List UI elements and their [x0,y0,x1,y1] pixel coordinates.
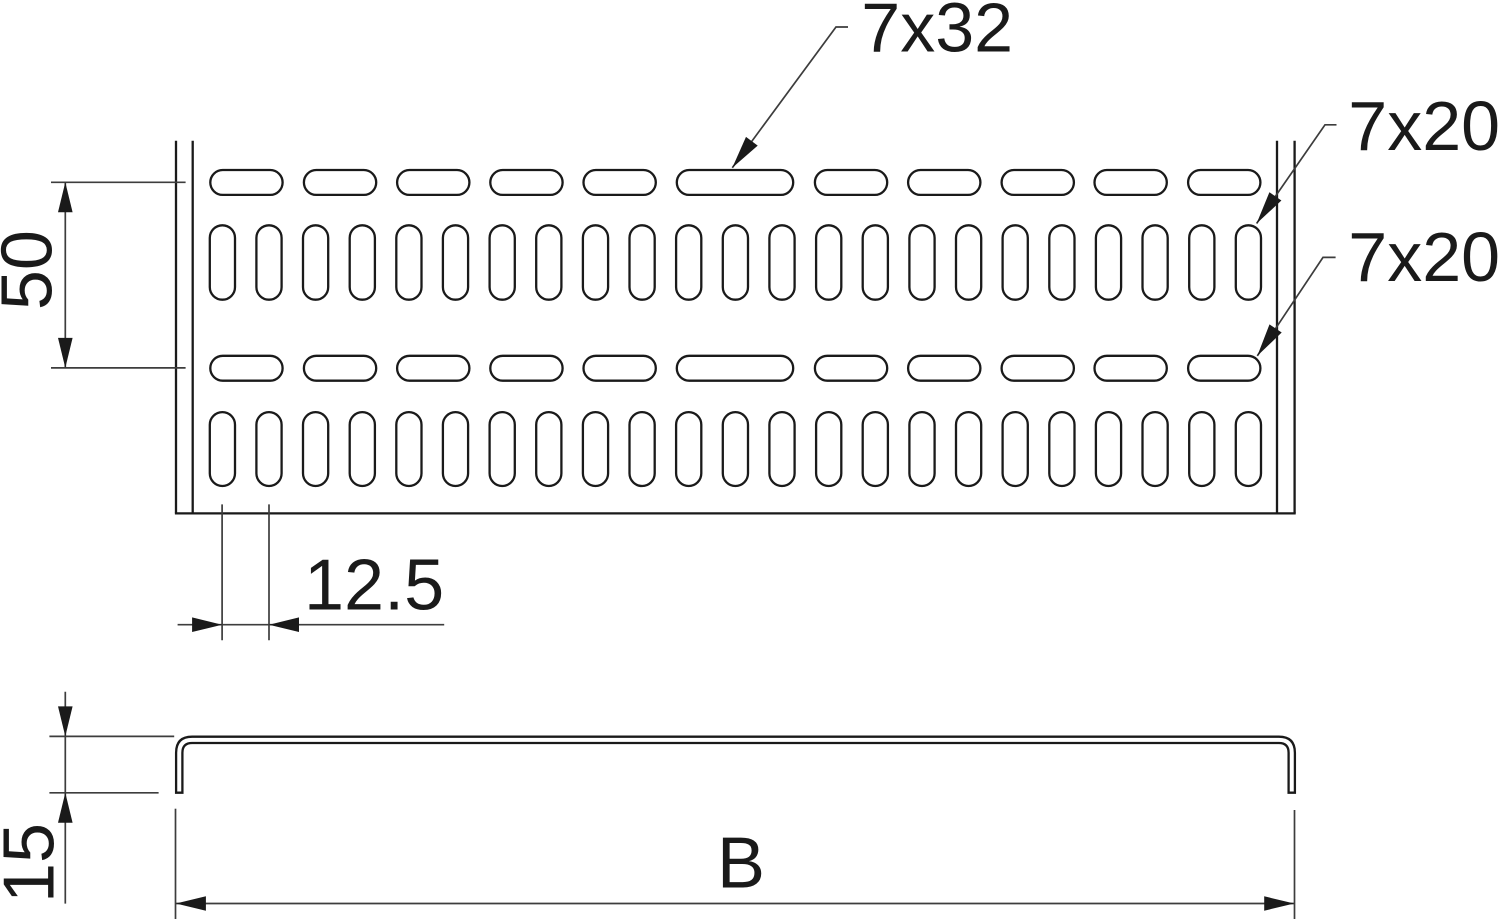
svg-text:7x32: 7x32 [861,0,1013,66]
svg-text:7x20: 7x20 [1348,218,1500,296]
svg-text:12.5: 12.5 [304,546,444,626]
svg-text:50: 50 [0,230,68,310]
svg-text:15: 15 [0,823,69,903]
svg-text:7x20: 7x20 [1348,87,1500,165]
svg-text:B: B [717,824,765,904]
